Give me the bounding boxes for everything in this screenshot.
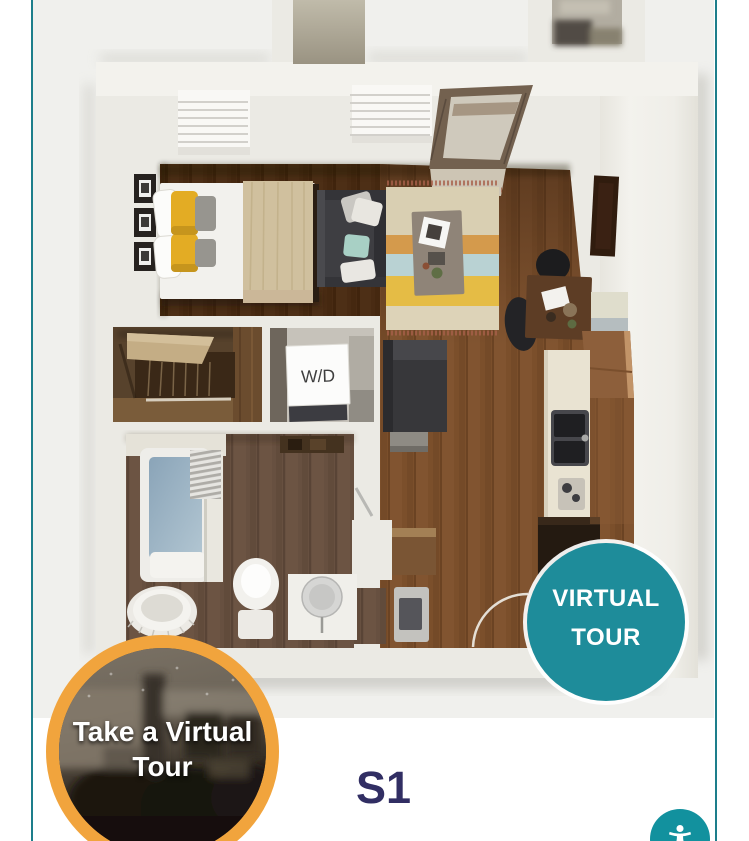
svg-text:W/D: W/D [301, 365, 336, 386]
